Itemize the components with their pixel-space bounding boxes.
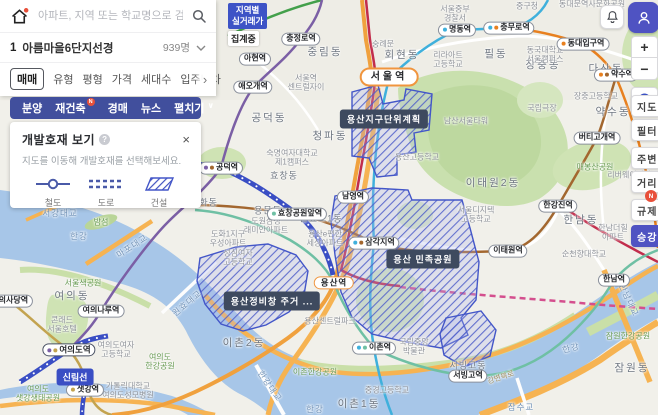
complex-result-row[interactable]: 1 아름마을6단지선경 939명 bbox=[0, 33, 216, 63]
search-panel: 1 아름마을6단지선경 939명 매매유형평형가격세대수입주년차› bbox=[0, 0, 216, 96]
map-tool-주변[interactable]: 주변 bbox=[631, 147, 658, 169]
legend-construction-label: 건설 bbox=[151, 196, 168, 209]
dev-tooltip[interactable]: 용산지구단위계획 bbox=[340, 110, 428, 129]
home-logo-icon bbox=[10, 7, 29, 26]
nav-item-label: 펼치기 bbox=[174, 100, 204, 116]
complex-name: 아름마을6단지선경 bbox=[22, 40, 156, 56]
construction-hatch-icon bbox=[140, 176, 178, 192]
nav-item-뉴스[interactable]: 뉴스 bbox=[141, 100, 161, 116]
map-tool-필터[interactable]: 필터 bbox=[631, 119, 658, 141]
my-profile-button[interactable] bbox=[628, 2, 658, 33]
dev-tooltip[interactable]: 용산 민족공원 bbox=[386, 250, 459, 269]
map-tool-승강[interactable]: 승강 bbox=[631, 225, 658, 247]
zoom-in-button[interactable]: + bbox=[631, 36, 658, 58]
bell-icon bbox=[605, 9, 620, 25]
filter-chip-평형[interactable]: 평형 bbox=[83, 71, 103, 87]
map-tool-지도[interactable]: 지도 bbox=[631, 95, 658, 117]
region-badge-line1: 지역별 bbox=[232, 5, 263, 16]
chevron-down-icon: ∨ bbox=[208, 101, 215, 110]
regulation-new-badge: N bbox=[645, 190, 657, 202]
complex-count: 939명 bbox=[163, 40, 190, 55]
search-icon[interactable] bbox=[192, 9, 206, 23]
notification-bell-button[interactable] bbox=[600, 5, 624, 29]
help-icon[interactable]: ? bbox=[99, 134, 110, 145]
chevron-down-icon[interactable] bbox=[196, 45, 206, 51]
complex-rank: 1 bbox=[10, 42, 16, 54]
hogangnono-map-app: 중림동회현동필동장충동다산동약수동후암동청파동공덕동이태원2동한남동원효로1동효… bbox=[0, 0, 658, 415]
legend-road[interactable]: 도로 bbox=[81, 176, 131, 209]
filter-chip-유형[interactable]: 유형 bbox=[53, 71, 73, 87]
filter-chip-row: 매매유형평형가격세대수입주년차› bbox=[0, 63, 216, 95]
nav-item-재건축[interactable]: 재건축N bbox=[55, 100, 94, 116]
dev-panel-subtitle: 지도를 이동해 개발호재를 선택해보세요. bbox=[22, 153, 190, 167]
legend-construction[interactable]: 건설 bbox=[134, 176, 184, 209]
dev-panel-title: 개발호재 보기 bbox=[22, 131, 95, 148]
nav-item-label: 분양 bbox=[22, 100, 42, 116]
filter-chip-가격[interactable]: 가격 bbox=[112, 71, 132, 87]
nav-item-label: 재건축 bbox=[55, 100, 85, 116]
nav-item-분양[interactable]: 분양 bbox=[22, 100, 42, 116]
category-nav-bar: 분양재건축N경매뉴스펼치기∨ bbox=[10, 97, 201, 119]
nav-item-label: 경매 bbox=[108, 100, 128, 116]
zoom-out-button[interactable]: − bbox=[631, 58, 658, 80]
nav-item-label: 뉴스 bbox=[141, 100, 161, 116]
legend-road-label: 도로 bbox=[98, 196, 115, 209]
person-icon bbox=[635, 9, 653, 27]
legend-rail-label: 철도 bbox=[45, 196, 62, 209]
filter-chip-세대수[interactable]: 세대수 bbox=[141, 71, 171, 87]
region-badge-status: 집계중 bbox=[228, 31, 259, 46]
road-dash-icon bbox=[87, 176, 125, 192]
zoom-controls: + − bbox=[631, 36, 658, 80]
dev-benefit-panel: 개발호재 보기 ? × 지도를 이동해 개발호재를 선택해보세요. 철도 도로 bbox=[10, 122, 201, 208]
nav-item-펼치기[interactable]: 펼치기∨ bbox=[174, 100, 214, 116]
map-tool-규제[interactable]: 규제 bbox=[631, 199, 658, 221]
close-icon[interactable]: × bbox=[182, 133, 190, 146]
filters-more-chevron[interactable]: › bbox=[194, 63, 216, 95]
filter-chip-매매[interactable]: 매매 bbox=[10, 68, 44, 90]
legend-rail[interactable]: 철도 bbox=[28, 176, 78, 209]
new-badge-icon: N bbox=[87, 98, 95, 106]
dev-tooltip[interactable]: 용산정비창 주거 ... bbox=[224, 292, 320, 311]
dev-line-pill[interactable]: 신림선 bbox=[57, 369, 94, 386]
nav-item-경매[interactable]: 경매 bbox=[108, 100, 128, 116]
region-price-badge[interactable]: 지역별 실거래가 집계중 bbox=[228, 3, 267, 47]
region-badge-line2: 실거래가 bbox=[232, 16, 263, 27]
map-tool-거리[interactable]: 거리 bbox=[631, 171, 658, 193]
search-input[interactable] bbox=[36, 9, 185, 23]
rail-line-icon bbox=[34, 176, 72, 192]
